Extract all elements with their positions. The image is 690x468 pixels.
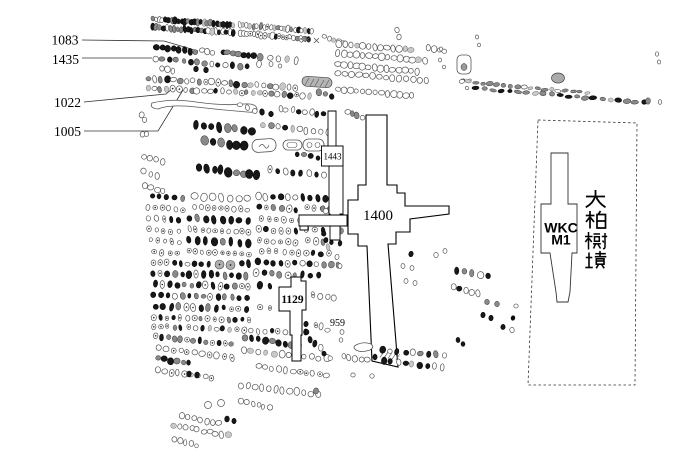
svg-text:1005: 1005 bbox=[54, 124, 81, 139]
svg-text:1129: 1129 bbox=[281, 294, 304, 306]
svg-text:1022: 1022 bbox=[54, 95, 81, 110]
svg-text:1435: 1435 bbox=[52, 52, 79, 67]
svg-text:1400: 1400 bbox=[363, 208, 393, 224]
svg-text:1443: 1443 bbox=[324, 152, 343, 162]
svg-text:959: 959 bbox=[330, 318, 345, 329]
svg-text:M1: M1 bbox=[551, 232, 571, 248]
svg-text:1083: 1083 bbox=[52, 33, 79, 48]
